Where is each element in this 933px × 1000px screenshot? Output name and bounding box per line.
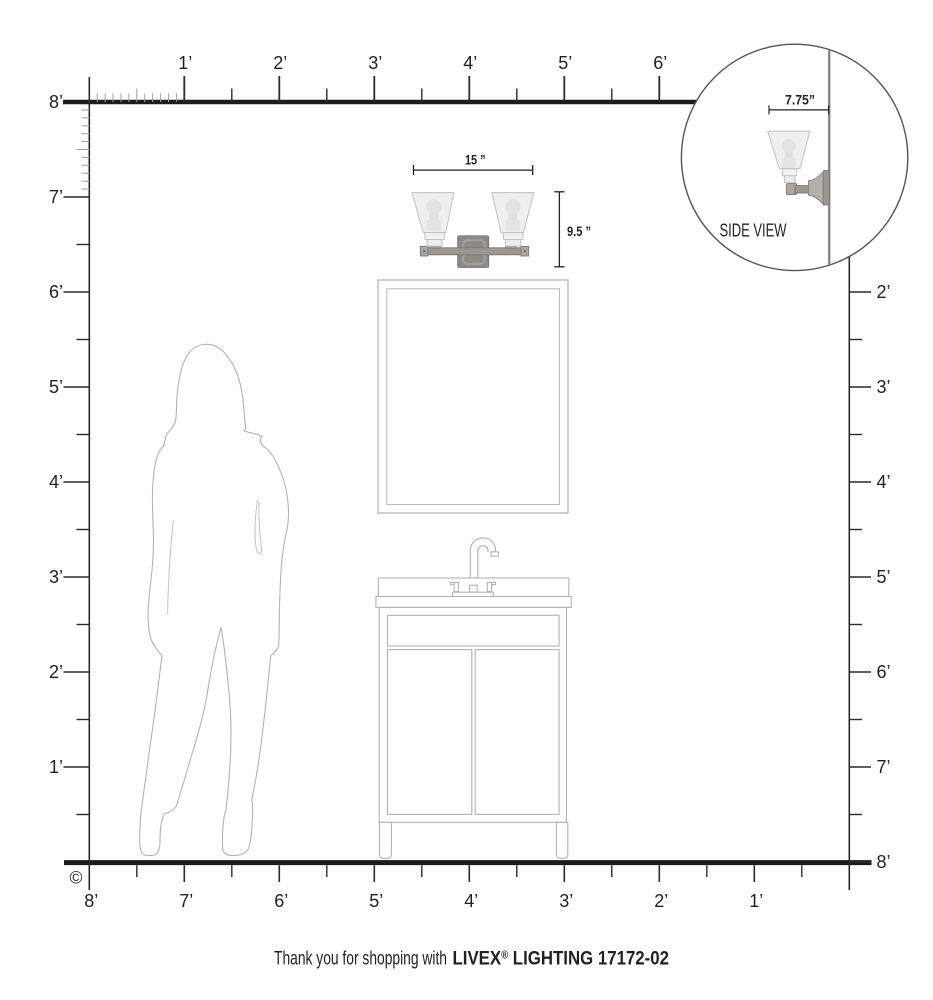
svg-text:7’: 7’	[179, 891, 193, 911]
svg-text:6’: 6’	[49, 282, 63, 302]
svg-text:1’: 1’	[49, 757, 63, 777]
svg-text:4’: 4’	[463, 53, 477, 73]
svg-text:4’: 4’	[877, 472, 891, 492]
svg-text:1’: 1’	[749, 891, 763, 911]
svg-text:2’: 2’	[654, 891, 668, 911]
svg-text:3’: 3’	[368, 53, 382, 73]
svg-text:15 ”: 15 ”	[465, 152, 486, 168]
svg-text:4’: 4’	[49, 472, 63, 492]
svg-text:8’: 8’	[84, 891, 98, 911]
svg-text:3’: 3’	[877, 377, 891, 397]
svg-text:4’: 4’	[464, 891, 478, 911]
svg-text:5’: 5’	[369, 891, 383, 911]
svg-text:7’: 7’	[877, 757, 891, 777]
svg-text:3’: 3’	[559, 891, 573, 911]
svg-text:8’: 8’	[49, 92, 63, 112]
svg-text:©: ©	[70, 868, 83, 888]
svg-text:8’: 8’	[877, 852, 891, 872]
svg-text:2’: 2’	[273, 53, 287, 73]
svg-text:6’: 6’	[877, 662, 891, 682]
svg-text:2’: 2’	[49, 662, 63, 682]
svg-text:6’: 6’	[653, 53, 667, 73]
svg-text:9.5 ”: 9.5 ”	[567, 223, 591, 239]
svg-text:1’: 1’	[178, 53, 192, 73]
svg-text:7.75”: 7.75”	[785, 91, 815, 107]
svg-text:5’: 5’	[558, 53, 572, 73]
svg-text:SIDE VIEW: SIDE VIEW	[720, 221, 787, 241]
svg-text:2’: 2’	[877, 282, 891, 302]
svg-text:6’: 6’	[274, 891, 288, 911]
svg-text:LIVEX® LIGHTING 17172-02: LIVEX® LIGHTING 17172-02	[453, 948, 670, 970]
svg-text:7’: 7’	[49, 187, 63, 207]
svg-text:5’: 5’	[49, 377, 63, 397]
svg-text:3’: 3’	[49, 567, 63, 587]
svg-text:5’: 5’	[877, 567, 891, 587]
svg-text:Thank you for shopping with: Thank you for shopping with	[274, 948, 447, 970]
